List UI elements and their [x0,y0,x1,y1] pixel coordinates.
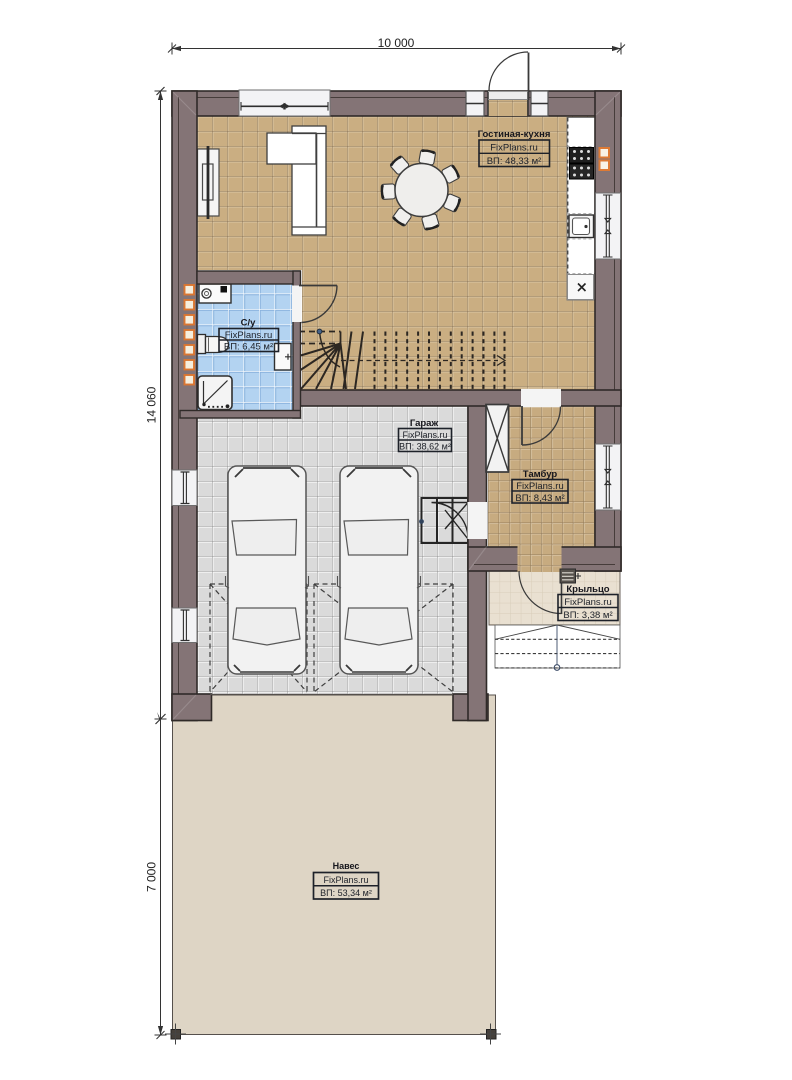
svg-text:10 000: 10 000 [378,36,415,50]
svg-text:С/у: С/у [241,318,257,329]
svg-text:Гостиная-кухня: Гостиная-кухня [478,129,551,140]
svg-text:Навес: Навес [333,861,360,871]
svg-text:Тамбур: Тамбур [523,469,558,480]
svg-text:ВП: 38,62 м²: ВП: 38,62 м² [399,441,451,451]
svg-text:7 000: 7 000 [145,862,159,892]
svg-text:14 060: 14 060 [145,386,159,423]
svg-text:FixPlans.ru: FixPlans.ru [402,430,447,440]
svg-text:FixPlans.ru: FixPlans.ru [564,597,612,608]
svg-text:FixPlans.ru: FixPlans.ru [225,330,273,341]
svg-text:ВП: 6,45 м²: ВП: 6,45 м² [224,341,273,352]
svg-text:ВП: 48,33 м²: ВП: 48,33 м² [487,156,542,167]
svg-text:FixPlans.ru: FixPlans.ru [516,481,564,492]
svg-text:Гараж: Гараж [410,418,439,429]
svg-text:ВП: 3,38 м²: ВП: 3,38 м² [563,610,612,621]
svg-text:ВП: 53,34 м²: ВП: 53,34 м² [320,888,372,898]
svg-text:Крыльцо: Крыльцо [566,584,609,595]
svg-text:FixPlans.ru: FixPlans.ru [323,875,368,885]
svg-text:ВП: 8,43 м²: ВП: 8,43 м² [515,493,564,504]
svg-text:FixPlans.ru: FixPlans.ru [490,143,538,154]
